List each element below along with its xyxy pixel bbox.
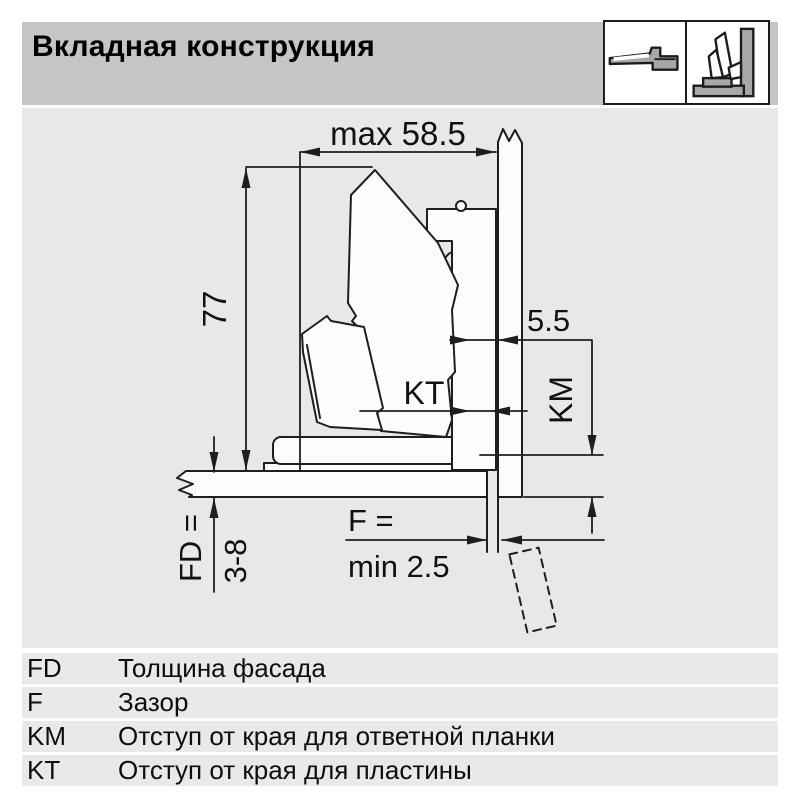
dim-fd-value: 3-8 [218, 539, 253, 584]
dim-kt-label: KT [404, 375, 445, 411]
legend-key: KM [22, 721, 118, 752]
legend-description: Зазор [118, 687, 778, 718]
legend-table: FD Толщина фасада F Зазор KM Отступ от к… [22, 653, 778, 789]
legend-key: FD [22, 653, 118, 684]
dim-arm-clearance-label: 5.5 [527, 303, 570, 338]
hinge-inset-open-icon [685, 20, 770, 105]
legend-row-km: KM Отступ от края для ответной планки [22, 721, 778, 752]
page-title: Вкладная конструкция [32, 30, 375, 64]
hinge-cup-plate [273, 437, 475, 464]
hinge-straight-arm-glyph [605, 22, 686, 103]
legend-description: Толщина фасада [118, 653, 778, 684]
dim-max-width-label: max 58.5 [330, 115, 466, 152]
legend-description: Отступ от края для пластины [118, 755, 778, 786]
legend-key: KT [22, 755, 118, 786]
mounting-plate-nub [456, 201, 466, 211]
hinge-straight-arm-icon [603, 20, 688, 105]
dim-km-label: KM [543, 376, 579, 424]
cabinet-side-panel [498, 129, 522, 497]
legend-description: Отступ от края для ответной планки [118, 721, 778, 752]
dim-f-label: F = [348, 503, 394, 538]
legend-row-f: F Зазор [22, 687, 778, 718]
dim-fd-label: FD = [173, 514, 208, 582]
legend-row-kt: KT Отступ от края для пластины [22, 755, 778, 786]
dim-f-value: min 2.5 [348, 549, 450, 584]
header-bar: Вкладная конструкция [22, 22, 778, 105]
hinge-inset-open-glyph [687, 22, 759, 103]
door-facade [177, 471, 487, 497]
legend-key: F [22, 687, 118, 718]
legend-row-fd: FD Толщина фасада [22, 653, 778, 684]
dim-height-label: 77 [196, 291, 233, 328]
